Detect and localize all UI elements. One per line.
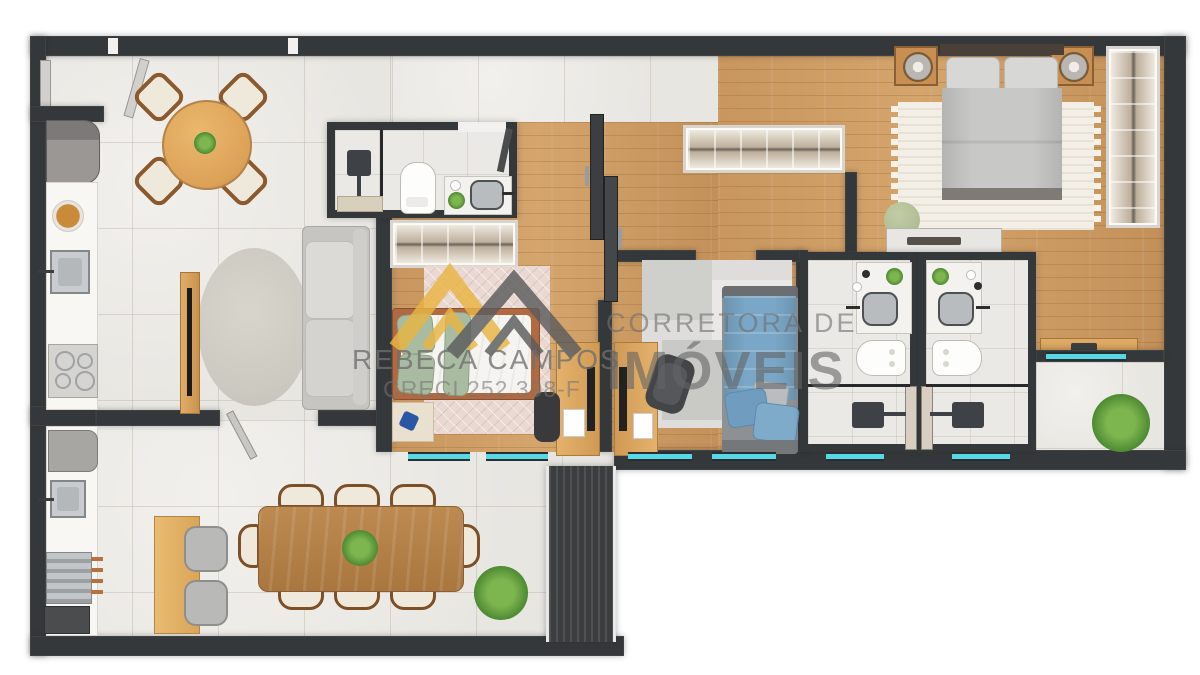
watermark-logo (0, 0, 1200, 675)
watermark-license: CRECI 252.398-F (372, 376, 592, 403)
floor-plan: REBECA CAMPOS CRECI 252.398-F CORRETORA … (0, 0, 1200, 675)
watermark-brand: REBECA CAMPOS (352, 344, 612, 376)
watermark-tagline-bottom: IMÓVEIS (598, 340, 854, 402)
watermark-tagline-top: CORRETORA DE (606, 308, 830, 339)
